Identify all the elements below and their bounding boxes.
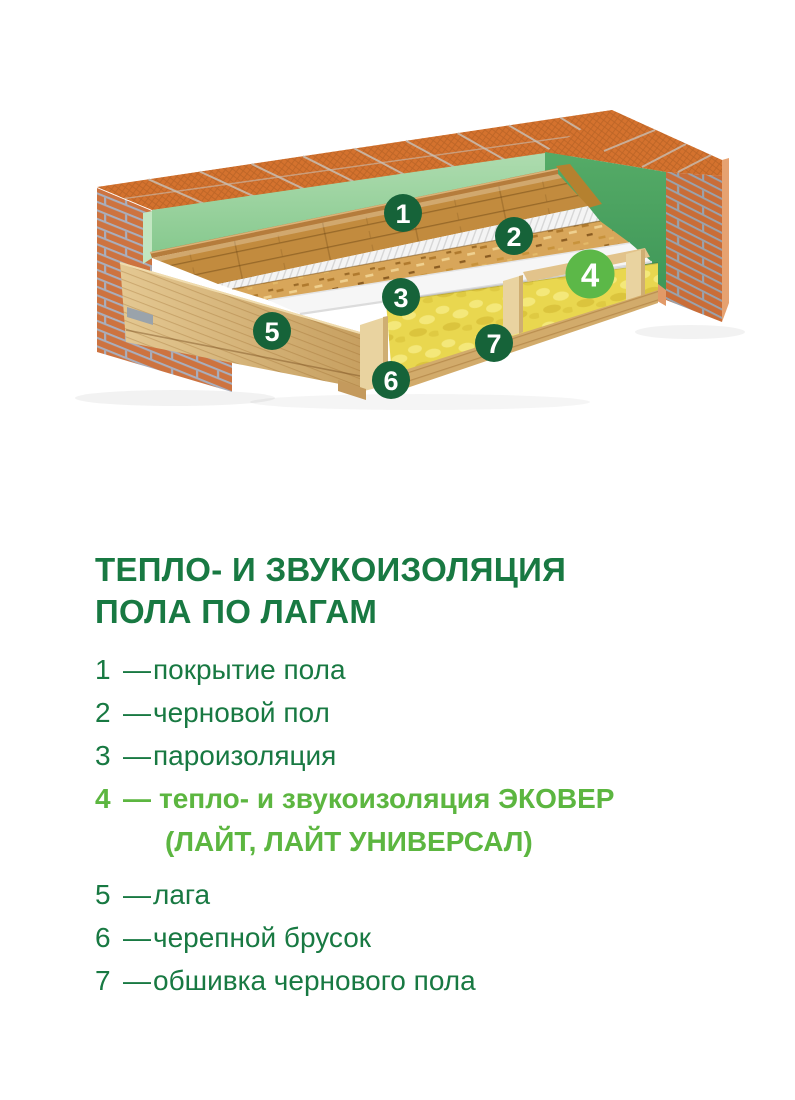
page-title: ТЕПЛО- И ЗВУКОИЗОЛЯЦИЯ ПОЛА ПО ЛАГАМ xyxy=(95,549,755,633)
legend-item-dash: — xyxy=(123,916,153,959)
marker-3: 3 xyxy=(382,278,420,316)
legend-item-dash: — xyxy=(123,873,153,916)
legend-item-number: 6 xyxy=(95,916,123,959)
marker-6: 6 xyxy=(372,361,410,399)
legend-item-number: 2 xyxy=(95,691,123,734)
page-title-line1: ТЕПЛО- И ЗВУКОИЗОЛЯЦИЯ xyxy=(95,549,755,591)
text-content: ТЕПЛО- И ЗВУКОИЗОЛЯЦИЯ ПОЛА ПО ЛАГАМ 1 —… xyxy=(95,549,755,1002)
legend-item-label: обшивка чернового пола xyxy=(153,959,476,1002)
marker-1: 1 xyxy=(384,194,422,232)
legend-item-2: 2 — черновой пол xyxy=(95,691,755,734)
legend-item-label: покрытие пола xyxy=(153,648,346,691)
svg-text:7: 7 xyxy=(486,329,501,359)
right-wall-edge-face xyxy=(722,158,729,322)
green-panel-edge xyxy=(143,211,152,264)
legend-item-dash: — xyxy=(123,734,153,777)
legend-item-4-line2: (ЛАЙТ, ЛАЙТ УНИВЕРСАЛ) xyxy=(95,820,755,863)
right-wall-brick-face xyxy=(666,172,722,322)
page-title-line2: ПОЛА ПО ЛАГАМ xyxy=(95,591,755,633)
legend-item-5: 5 — лага xyxy=(95,873,755,916)
legend-item-number: 1 xyxy=(95,648,123,691)
svg-text:1: 1 xyxy=(395,199,410,229)
svg-text:3: 3 xyxy=(393,283,408,313)
legend-item-label: черепной брусок xyxy=(153,916,371,959)
svg-text:5: 5 xyxy=(264,317,279,347)
floor-insulation-diagram: 1 2 3 4 5 6 7 xyxy=(0,0,795,440)
legend-item-dash: — xyxy=(123,777,153,820)
legend-item-number: 5 xyxy=(95,873,123,916)
legend: 1 — покрытие пола 2 — черновой пол 3 — п… xyxy=(95,648,755,1002)
svg-text:4: 4 xyxy=(581,257,600,294)
marker-4: 4 xyxy=(566,250,615,299)
svg-text:2: 2 xyxy=(506,222,521,252)
legend-item-label: тепло- и звукоизоляция ЭКОВЕР xyxy=(159,777,614,820)
legend-item-6: 6 — черепной брусок xyxy=(95,916,755,959)
legend-item-dash: — xyxy=(123,691,153,734)
legend-item-dash: — xyxy=(123,959,153,1002)
legend-item-label: черновой пол xyxy=(153,691,330,734)
legend-item-number: 4 xyxy=(95,777,123,820)
marker-5: 5 xyxy=(253,312,291,350)
legend-item-7: 7 — обшивка чернового пола xyxy=(95,959,755,1002)
marker-7: 7 xyxy=(475,324,513,362)
legend-item-3: 3 — пароизоляция xyxy=(95,734,755,777)
svg-text:6: 6 xyxy=(383,366,398,396)
legend-item-label-line2: (ЛАЙТ, ЛАЙТ УНИВЕРСАЛ) xyxy=(165,820,533,863)
marker-2: 2 xyxy=(495,217,533,255)
legend-item-1: 1 — покрытие пола xyxy=(95,648,755,691)
legend-item-4: 4 — тепло- и звукоизоляция ЭКОВЕР xyxy=(95,777,755,820)
legend-item-dash: — xyxy=(123,648,153,691)
legend-item-number: 7 xyxy=(95,959,123,1002)
legend-item-label: лага xyxy=(153,873,210,916)
infographic-page: 1 2 3 4 5 6 7 xyxy=(0,0,795,1100)
legend-item-number: 3 xyxy=(95,734,123,777)
legend-item-label: пароизоляция xyxy=(153,734,336,777)
